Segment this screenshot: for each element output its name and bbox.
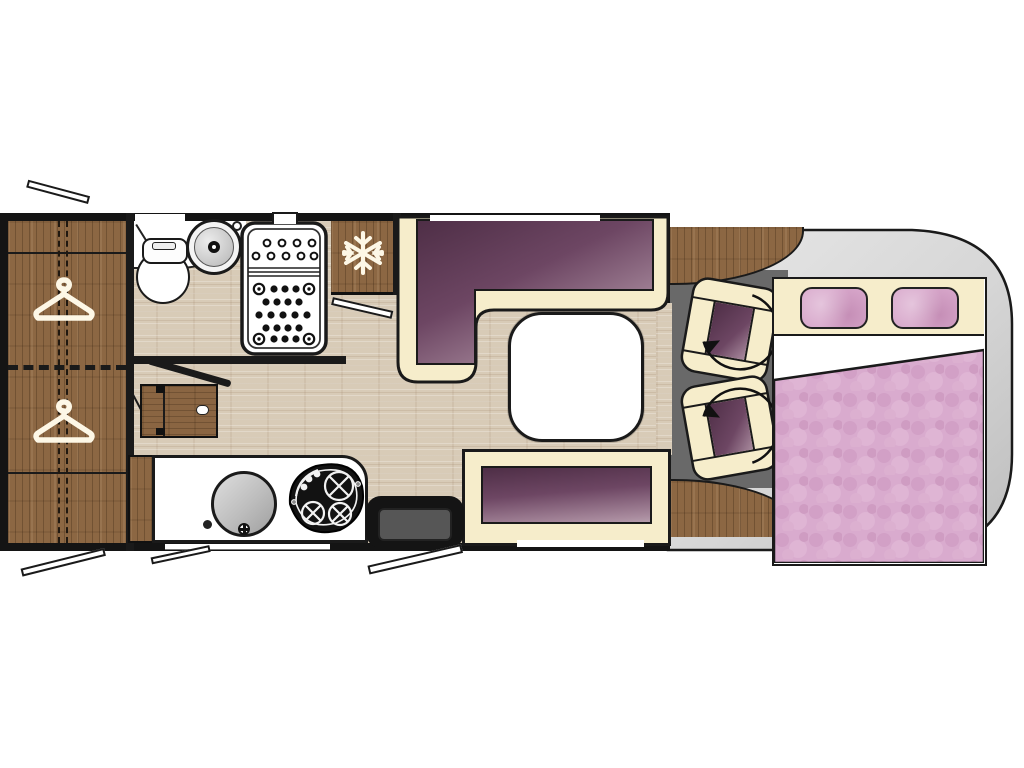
- window-flap-bottom-left: [21, 548, 106, 577]
- shower-door-notch: [272, 212, 298, 224]
- window-top-dinette: [430, 215, 600, 221]
- toilet-flush-button: [152, 242, 176, 250]
- wardrobe-rail-dash-1: [58, 221, 60, 543]
- sink-tap-knob: [203, 520, 212, 529]
- side-bench-cushion: [481, 466, 652, 524]
- sink-drain-cross: [240, 528, 248, 531]
- window-flap-top-left: [26, 180, 90, 204]
- washbasin-drain-dot: [212, 245, 216, 249]
- double-bed: [772, 277, 987, 566]
- hanger-icon: [33, 274, 95, 330]
- dinette-table: [508, 312, 644, 442]
- snowflake-icon: [340, 230, 386, 276]
- swivel-seat: [676, 371, 784, 485]
- table-hinge: [156, 428, 165, 435]
- motorhome-floorplan: [0, 0, 1024, 768]
- hanger-icon: [33, 396, 95, 452]
- table-hinge: [156, 386, 165, 393]
- shower-tray: [240, 221, 328, 357]
- table-handle: [196, 405, 209, 415]
- wardrobe-rail-dash-2: [66, 221, 68, 543]
- entry-step-tread: [378, 508, 452, 541]
- swivel-seat: [676, 273, 784, 387]
- kitchen-cabinet: [128, 455, 154, 543]
- hob: [282, 456, 370, 542]
- window-strip-bench: [517, 540, 644, 547]
- bed-duvet: [774, 279, 984, 563]
- window-top-bathroom: [135, 214, 185, 221]
